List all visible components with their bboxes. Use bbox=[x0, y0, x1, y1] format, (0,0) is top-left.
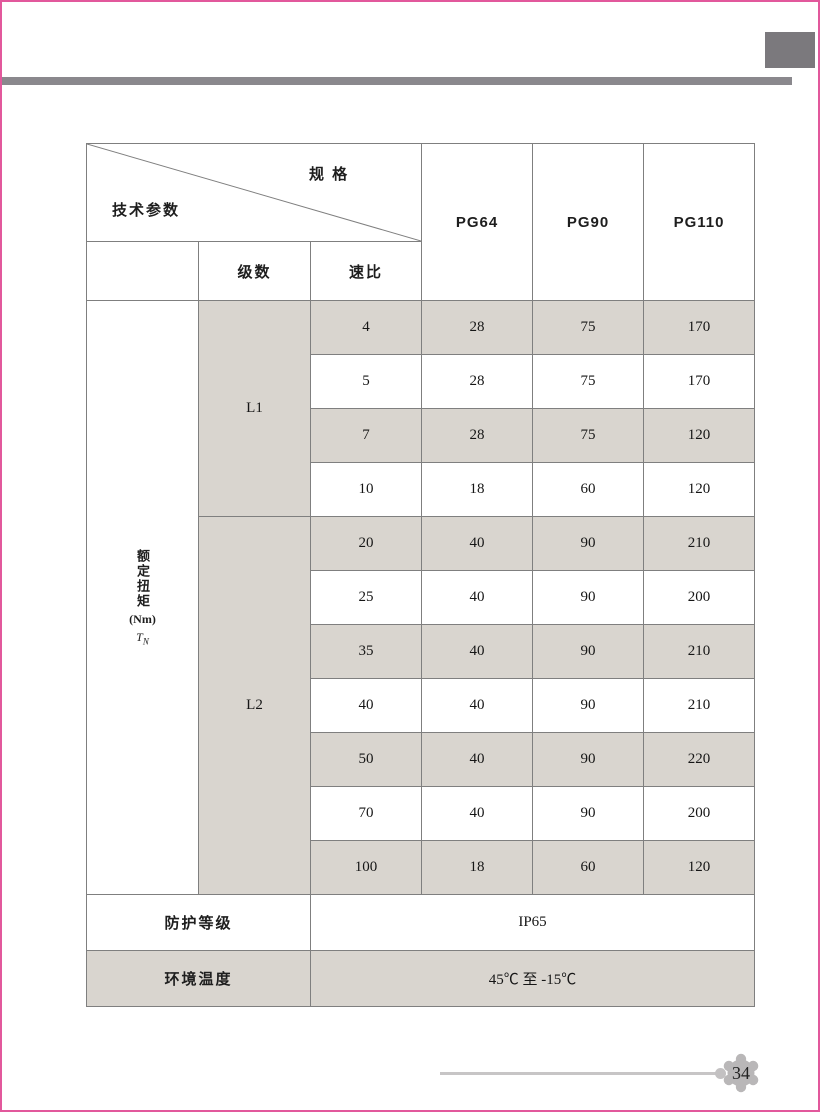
table-header: 规 格 技术参数 PG64 PG90 PG110 级数 速比 bbox=[87, 144, 755, 301]
blank-cell bbox=[87, 242, 199, 301]
pg90-cell: 90 bbox=[533, 787, 644, 841]
ratio-cell: 25 bbox=[311, 571, 422, 625]
rated-torque-title: 额定扭矩 bbox=[133, 549, 152, 609]
pg64-cell: 40 bbox=[422, 571, 533, 625]
ratio-cell: 35 bbox=[311, 625, 422, 679]
spec-table: 规 格 技术参数 PG64 PG90 PG110 级数 速比 额定扭矩(Nm)T… bbox=[86, 143, 755, 1007]
pg90-cell: 90 bbox=[533, 679, 644, 733]
column-header-ratio: 速比 bbox=[311, 242, 422, 301]
pg90-cell: 90 bbox=[533, 625, 644, 679]
page-number-badge: 34 bbox=[720, 1052, 762, 1094]
column-header-pg90: PG90 bbox=[533, 144, 644, 301]
table-footer: 防护等级 IP65 环境温度 45℃ 至 -15℃ bbox=[87, 895, 755, 1007]
pg110-cell: 220 bbox=[644, 733, 755, 787]
pg64-cell: 40 bbox=[422, 787, 533, 841]
pg110-cell: 210 bbox=[644, 517, 755, 571]
pg64-cell: 28 bbox=[422, 409, 533, 463]
pg90-cell: 60 bbox=[533, 463, 644, 517]
pg90-cell: 90 bbox=[533, 733, 644, 787]
page: 规 格 技术参数 PG64 PG90 PG110 级数 速比 额定扭矩(Nm)T… bbox=[0, 0, 820, 1112]
footer-rule bbox=[440, 1072, 718, 1075]
ratio-cell: 10 bbox=[311, 463, 422, 517]
pg90-cell: 60 bbox=[533, 841, 644, 895]
rated-torque-header-cell: 额定扭矩(Nm)TN bbox=[87, 301, 199, 895]
pg90-cell: 90 bbox=[533, 517, 644, 571]
pg110-cell: 120 bbox=[644, 409, 755, 463]
diagonal-line-icon bbox=[87, 144, 421, 241]
ratio-cell: 100 bbox=[311, 841, 422, 895]
pg64-cell: 28 bbox=[422, 355, 533, 409]
top-header-bar bbox=[2, 77, 792, 85]
pg90-cell: 90 bbox=[533, 571, 644, 625]
rated-torque-label: 额定扭矩(Nm)TN bbox=[87, 549, 198, 646]
header-spec-label: 规 格 bbox=[309, 163, 349, 184]
rated-torque-symbol: TN bbox=[136, 630, 149, 646]
pg110-cell: 210 bbox=[644, 625, 755, 679]
column-header-pg110: PG110 bbox=[644, 144, 755, 301]
pg64-cell: 28 bbox=[422, 301, 533, 355]
ratio-cell: 4 bbox=[311, 301, 422, 355]
header-tech-params-label: 技术参数 bbox=[112, 199, 180, 220]
pg110-cell: 200 bbox=[644, 787, 755, 841]
table-body: 额定扭矩(Nm)TNL14287517052875170728751201018… bbox=[87, 301, 755, 895]
ambient-temperature-value: 45℃ 至 -15℃ bbox=[311, 951, 755, 1007]
pg110-cell: 200 bbox=[644, 571, 755, 625]
rated-torque-unit: (Nm) bbox=[129, 612, 156, 627]
ratio-cell: 5 bbox=[311, 355, 422, 409]
pg110-cell: 170 bbox=[644, 355, 755, 409]
protection-class-label: 防护等级 bbox=[87, 895, 311, 951]
pg64-cell: 40 bbox=[422, 679, 533, 733]
ratio-cell: 50 bbox=[311, 733, 422, 787]
pg110-cell: 210 bbox=[644, 679, 755, 733]
pg64-cell: 18 bbox=[422, 841, 533, 895]
pg110-cell: 170 bbox=[644, 301, 755, 355]
diagonal-header-cell: 规 格 技术参数 bbox=[87, 144, 422, 242]
pg90-cell: 75 bbox=[533, 409, 644, 463]
pg90-cell: 75 bbox=[533, 301, 644, 355]
pg64-cell: 18 bbox=[422, 463, 533, 517]
pg64-cell: 40 bbox=[422, 517, 533, 571]
ratio-cell: 40 bbox=[311, 679, 422, 733]
ratio-cell: 20 bbox=[311, 517, 422, 571]
page-number: 34 bbox=[720, 1052, 762, 1094]
pg64-cell: 40 bbox=[422, 625, 533, 679]
protection-class-value: IP65 bbox=[311, 895, 755, 951]
ambient-temperature-label: 环境温度 bbox=[87, 951, 311, 1007]
pg90-cell: 75 bbox=[533, 355, 644, 409]
ratio-cell: 7 bbox=[311, 409, 422, 463]
column-header-stage: 级数 bbox=[199, 242, 311, 301]
column-header-pg64: PG64 bbox=[422, 144, 533, 301]
stage-cell-l1: L1 bbox=[199, 301, 311, 517]
pg64-cell: 40 bbox=[422, 733, 533, 787]
pg110-cell: 120 bbox=[644, 463, 755, 517]
table-row: 额定扭矩(Nm)TNL142875170 bbox=[87, 301, 755, 355]
top-accent-square bbox=[765, 32, 815, 68]
ratio-cell: 70 bbox=[311, 787, 422, 841]
pg110-cell: 120 bbox=[644, 841, 755, 895]
stage-cell-l2: L2 bbox=[199, 517, 311, 895]
